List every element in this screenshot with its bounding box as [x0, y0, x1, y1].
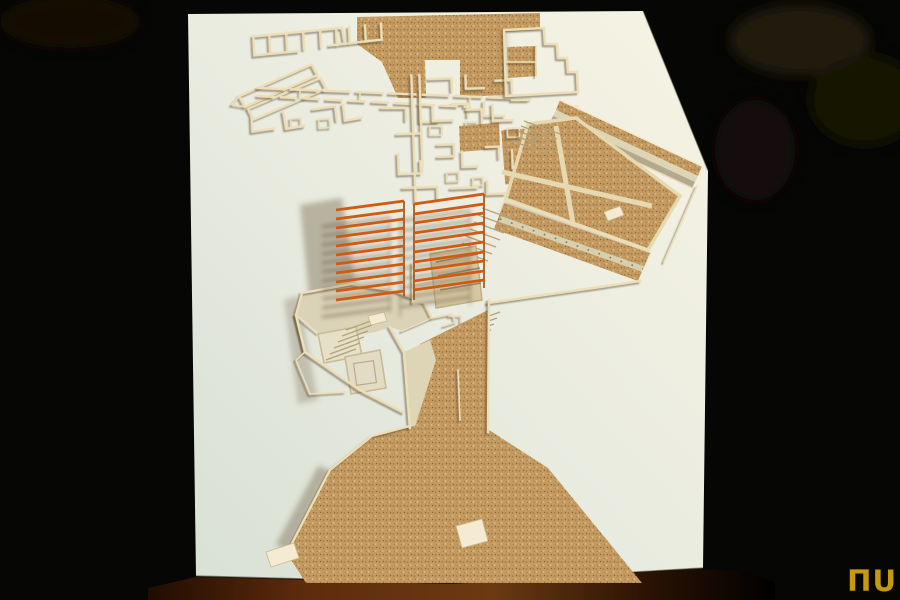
model-photo-canvas: ΠU	[0, 0, 900, 600]
watermark-logo: ΠU	[847, 564, 897, 598]
photo-architectural-model: ΠU	[0, 0, 900, 600]
sunken-room	[345, 350, 386, 394]
path-east-kerb	[488, 300, 489, 432]
